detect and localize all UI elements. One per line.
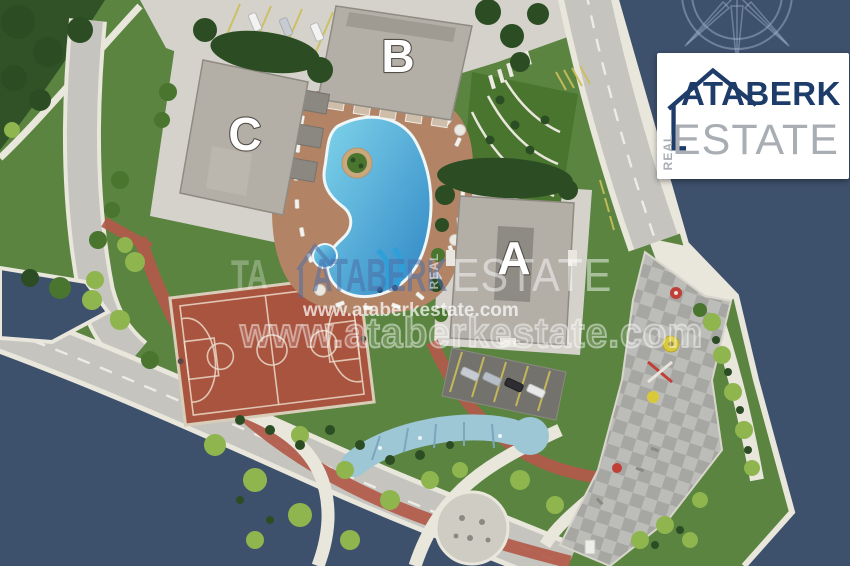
site-plan-render: B C A [0, 0, 850, 566]
building-a: A [446, 188, 577, 347]
building-b: B [318, 6, 472, 128]
ataberk-logo: REAL ATABERK ESTATE [657, 53, 849, 179]
pool-island [342, 148, 372, 178]
building-a-label: A [497, 232, 530, 284]
logo-brand-text: ATABERK [681, 77, 841, 110]
building-b-label: B [381, 30, 414, 82]
kids-pool [313, 244, 337, 268]
logo-estate-text: ESTATE [672, 119, 839, 162]
building-c-label: C [228, 108, 261, 160]
circular-plaza [436, 492, 508, 564]
